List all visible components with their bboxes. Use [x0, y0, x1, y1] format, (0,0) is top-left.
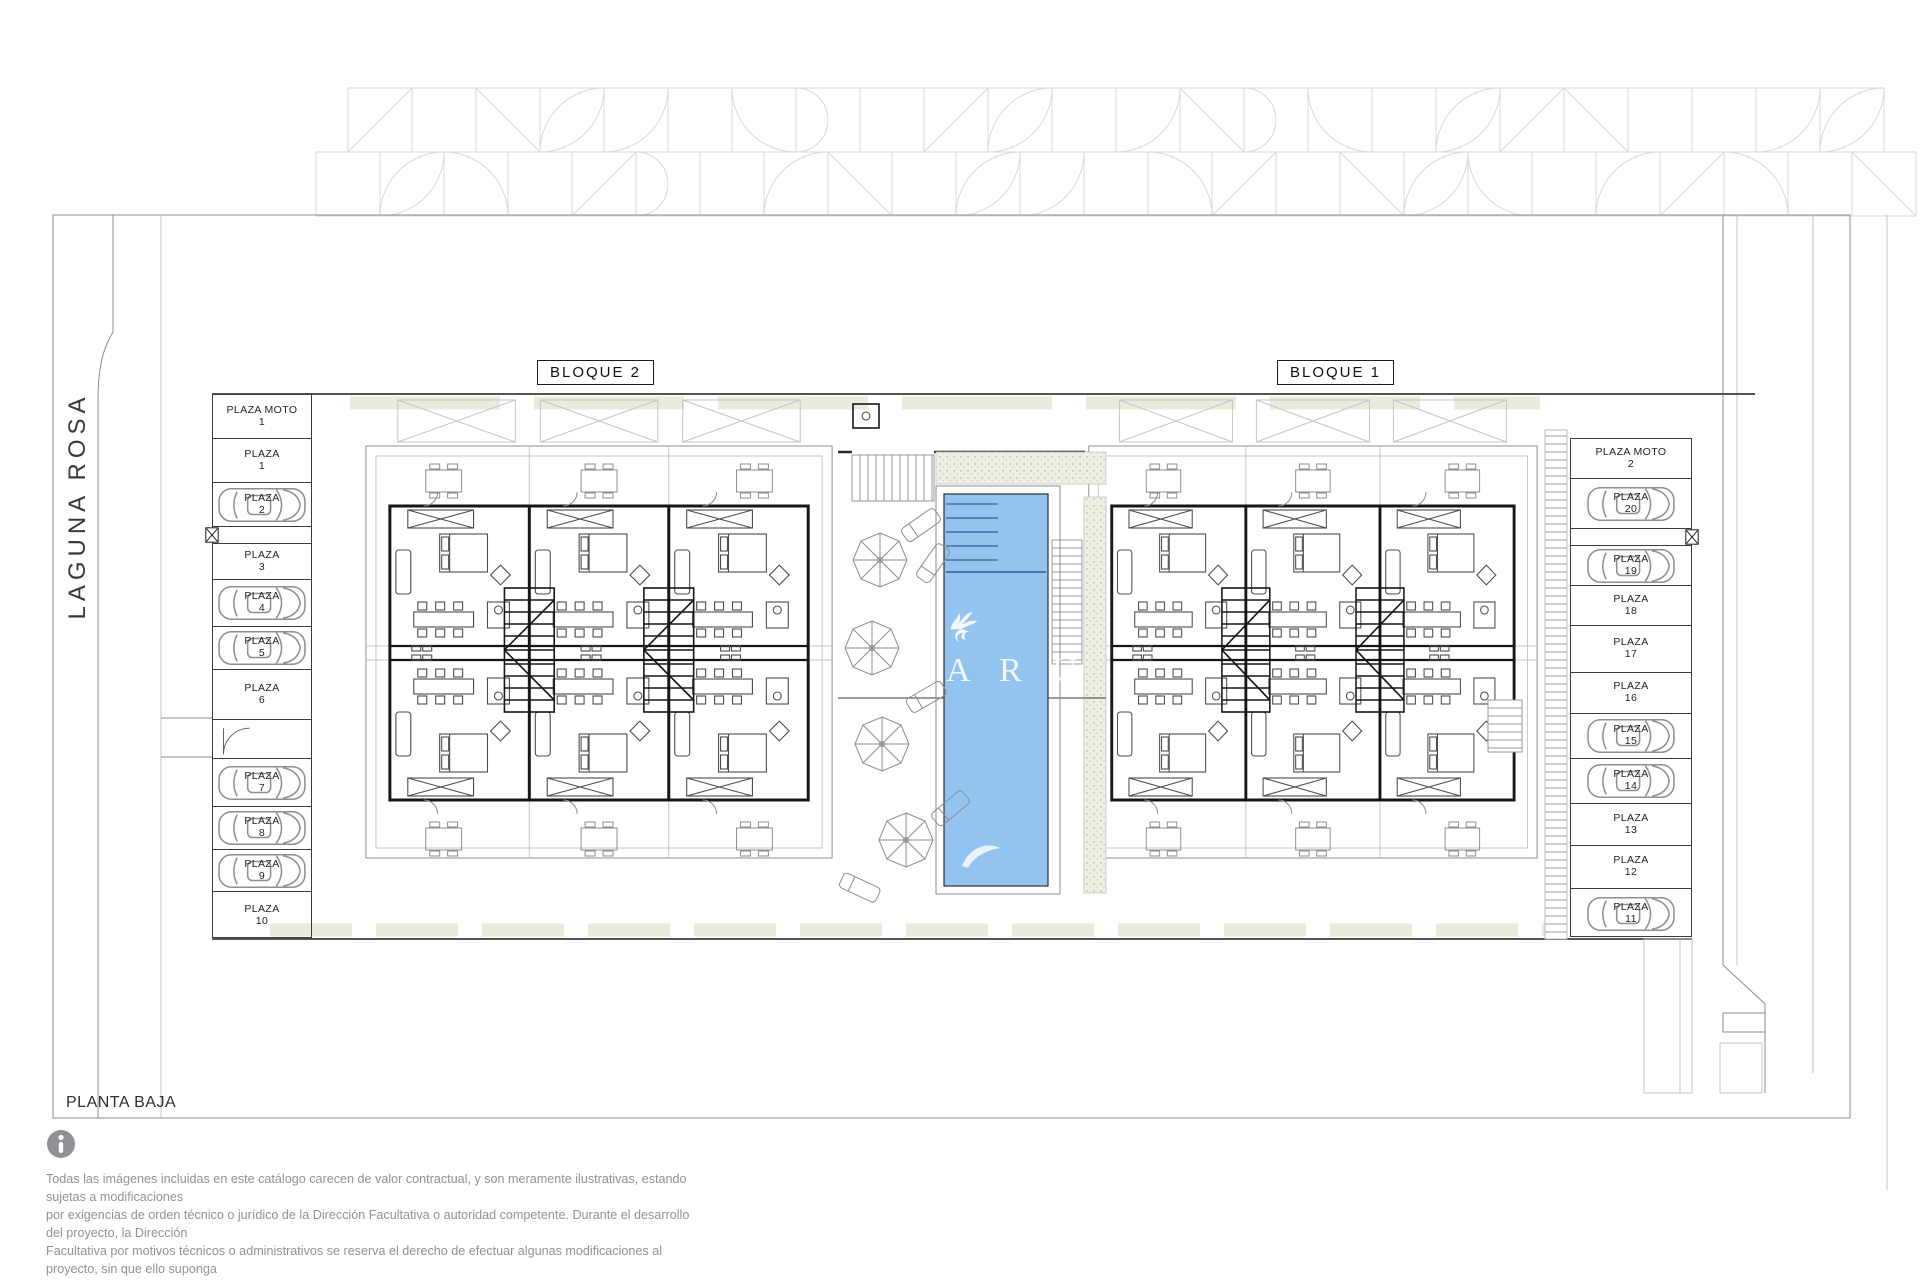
parasol-icon — [853, 533, 907, 587]
building-bloque-2 — [366, 400, 832, 858]
courtyard-stairs-top — [852, 455, 934, 501]
lounger-icon — [905, 680, 948, 714]
parasol-icon — [879, 813, 933, 867]
walkway-strip-right — [1545, 430, 1567, 939]
parasol-icon — [845, 621, 899, 675]
entrance-walkway — [161, 718, 212, 757]
decorative-pattern-band — [316, 88, 1916, 216]
info-icon — [46, 1129, 76, 1159]
label-bloque-2: BLOQUE 2 — [537, 360, 654, 385]
site-plan-page: BLOQUE 2 BLOQUE 1 LAGUNA ROSA PLANTA BAJ… — [0, 0, 1920, 1280]
floor-title: PLANTA BAJA — [66, 1094, 176, 1112]
ramp-right — [1644, 939, 1692, 1093]
site-plan-drawing — [0, 0, 1920, 1280]
street-laguna-rosa — [98, 215, 161, 1118]
street-right — [1720, 215, 1887, 1190]
legal-disclaimer: Todas las imágenes incluidas en este cat… — [46, 1170, 706, 1280]
watermark-text: A R U — [946, 652, 1066, 690]
building-bloque-1 — [1089, 400, 1537, 858]
label-bloque-1: BLOQUE 1 — [1277, 360, 1394, 385]
swimming-pool — [936, 486, 1060, 894]
parasol-icon — [855, 717, 909, 771]
pool-deck-top — [936, 452, 1106, 484]
terrace-stairs-right — [1488, 700, 1522, 752]
pool-deck-side — [1084, 497, 1106, 893]
lounger-icon — [838, 872, 881, 903]
pool-stairs — [1052, 540, 1082, 664]
street-name-label: LAGUNA ROSA — [64, 356, 92, 656]
